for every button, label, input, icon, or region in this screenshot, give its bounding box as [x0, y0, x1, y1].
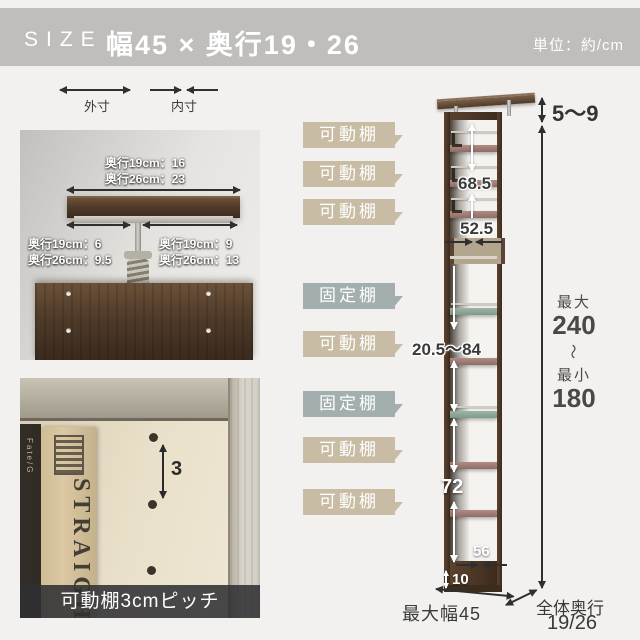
inner-dimension-arrow-right-icon	[187, 89, 218, 91]
unit-top-board	[444, 112, 502, 120]
upper-shelf-underside	[20, 378, 260, 421]
dim-arrow-10	[445, 571, 447, 588]
shelf-label-fixed-2: 固定棚	[303, 391, 395, 417]
overall-height-arrow	[541, 126, 543, 588]
bracket-width-dim-26: 奥行26cm：23	[20, 170, 260, 187]
shelf-label-movable-2: 可動棚	[303, 161, 395, 187]
outer-dimension-arrow-icon	[60, 89, 130, 91]
top-gap-arrow	[541, 98, 543, 122]
dim-range: 20.5〜84	[412, 335, 481, 360]
inner-arrow-right-2	[483, 564, 507, 566]
dim-68-5: 68.5	[458, 174, 491, 194]
slide-joint-shelf	[450, 256, 497, 259]
inner-dimension-label: 内寸	[171, 96, 197, 115]
rod-nut	[124, 251, 152, 259]
pin-hole	[149, 433, 158, 442]
dim-52-5: 52.5	[460, 219, 493, 239]
pin-hole	[148, 500, 157, 509]
shelf-bracket	[452, 133, 462, 147]
header-band: SIZE 幅45 × 奥行19・26 単位：約/cm	[0, 8, 640, 66]
bracket-right-arrow	[143, 224, 237, 226]
shelf-label-movable-3: 可動棚	[303, 199, 395, 225]
metal-plate	[74, 216, 233, 223]
shelf-label-movable-6: 可動棚	[303, 489, 395, 515]
max-width-label: 最大幅45	[402, 600, 481, 626]
dim-arrow-72-bottom	[453, 502, 455, 562]
pitch-arrow	[162, 445, 164, 498]
dim-top-gap: 5〜9	[552, 96, 598, 128]
shelf-pitch-photo: Fate/G STRAIGHT 3 可動棚3cmピッチ	[20, 378, 260, 618]
inner-arrow-right	[476, 241, 502, 243]
book-stopper-rail	[451, 303, 497, 305]
book-spine-small-text: Fate/G	[22, 438, 34, 558]
height-min-value: 180	[548, 385, 600, 412]
unit-side-panel	[502, 103, 532, 592]
inner-dimension-arrow-left-icon	[150, 89, 181, 91]
inner-arrow-left-2	[456, 564, 478, 566]
dim-56: 56	[473, 543, 490, 560]
bracket-width-dim-19: 奥行19cm：16	[20, 154, 260, 171]
height-max-value: 240	[548, 312, 600, 339]
photo-caption: 可動棚3cmピッチ	[20, 585, 260, 618]
unit-label: 単位：約/cm	[533, 34, 624, 55]
dim-10: 10	[452, 571, 469, 588]
page-title: 幅45 × 奥行19・26	[106, 23, 361, 62]
overall-depth-value: 19/26	[547, 612, 597, 635]
bracket-left-dim-26: 奥行26cm：9.5	[28, 251, 111, 268]
height-min-label: 最小	[548, 364, 600, 385]
dim-arrow-52-5	[471, 194, 473, 218]
unit-right-frame	[497, 112, 502, 592]
top-plate	[67, 196, 240, 218]
dim-arrow-68-5	[471, 124, 473, 171]
height-tilde: 〜	[563, 344, 584, 359]
size-label: SIZE	[24, 28, 103, 52]
size-specification-image: SIZE 幅45 × 奥行19・26 単位：約/cm 外寸 内寸 奥行19cm：…	[0, 0, 640, 640]
bracket-width-arrow	[67, 189, 240, 191]
side-panel-edge	[228, 378, 260, 618]
ceiling-bracket-photo: 奥行19cm：16 奥行26cm：23 奥行19cm：6 奥行26cm：9.5 …	[20, 130, 260, 360]
shelf-bracket	[452, 200, 462, 213]
dim-72: 72	[441, 476, 463, 499]
pin-hole	[147, 566, 156, 575]
screw-hole	[206, 328, 211, 333]
shelf-label-movable-5: 可動棚	[303, 437, 395, 463]
bracket-right-dim-26: 奥行26cm：13	[159, 251, 239, 268]
bracket-left-dim-19: 奥行19cm：6	[28, 235, 101, 252]
shelf-label-movable-4: 可動棚	[303, 331, 395, 357]
overall-height-text: 最大 240 〜 最小 180	[548, 291, 600, 413]
height-max-label: 最大	[548, 291, 600, 312]
fixed-shelf	[450, 411, 497, 418]
pitch-value: 3	[171, 458, 182, 481]
screw-hole	[66, 291, 71, 296]
bracket-left-arrow	[67, 224, 130, 226]
shelf-label-fixed-1: 固定棚	[303, 283, 395, 309]
outer-dimension-label: 外寸	[84, 96, 110, 115]
fixed-shelf	[450, 308, 497, 315]
dim-arrow-range-top	[453, 266, 455, 329]
movable-shelf	[450, 510, 497, 517]
screw-hole	[206, 291, 211, 296]
book-logo	[54, 435, 84, 475]
screw-hole	[66, 328, 71, 333]
shelf-label-movable-1: 可動棚	[303, 122, 395, 148]
bracket-right-dim-19: 奥行19cm：9	[159, 235, 232, 252]
dim-arrow-72-top	[453, 419, 455, 472]
dim-arrow-range-bottom	[453, 361, 455, 411]
inner-arrow-left	[445, 241, 472, 243]
